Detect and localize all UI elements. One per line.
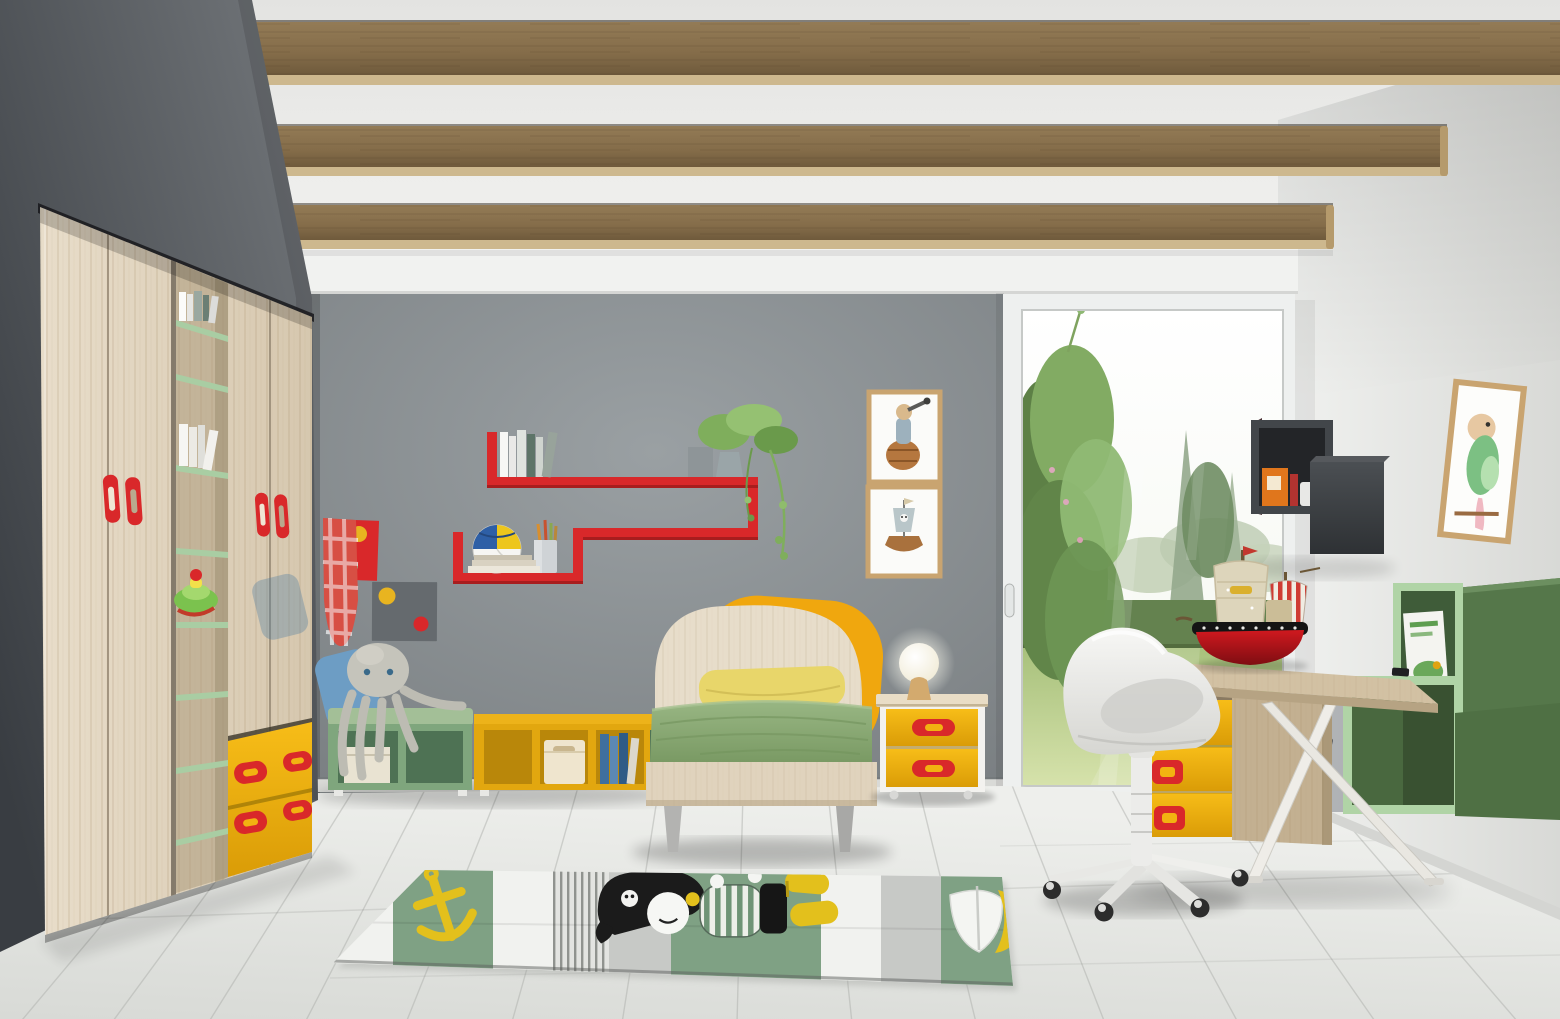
kids-bedroom-scene: Bright children's bedroom render in gray…	[0, 0, 1560, 1019]
book-stack	[468, 555, 540, 573]
gray-box	[688, 447, 713, 477]
closed-cube	[1310, 462, 1384, 554]
yellow-bench	[474, 714, 660, 796]
knob-red	[414, 617, 429, 632]
bed-duvet	[650, 701, 872, 762]
framed-print-ship	[868, 487, 940, 576]
ship-main-sail	[1214, 561, 1268, 631]
caster	[890, 791, 899, 800]
parrot-print	[1440, 382, 1524, 541]
plaid-towel	[323, 518, 358, 646]
soffit-edge	[250, 291, 1298, 294]
fabric-basket	[544, 740, 585, 784]
knob-yellow	[379, 588, 396, 605]
wardrobe-shelf-column	[174, 262, 228, 893]
chair-stem	[1128, 742, 1155, 866]
room-render: Bright children's bedroom render in gray…	[0, 0, 1560, 1019]
beam-2	[115, 124, 1448, 176]
desk-socket	[1392, 667, 1410, 676]
door-handle	[1005, 584, 1014, 617]
wardrobe-drawers	[228, 718, 314, 877]
beam-3	[190, 203, 1334, 256]
beam-1	[86, 20, 1560, 85]
framed-print-barrel	[869, 392, 940, 482]
shelf	[176, 622, 228, 628]
cubby-books	[600, 733, 639, 784]
caster	[964, 791, 973, 800]
